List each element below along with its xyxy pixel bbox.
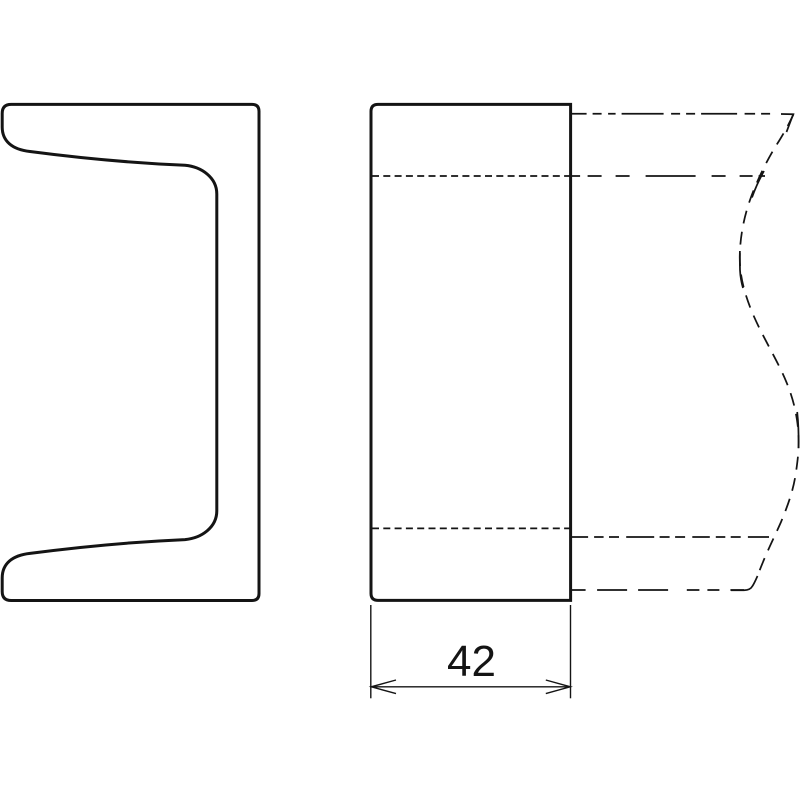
svg-text:42: 42 [447, 637, 496, 686]
